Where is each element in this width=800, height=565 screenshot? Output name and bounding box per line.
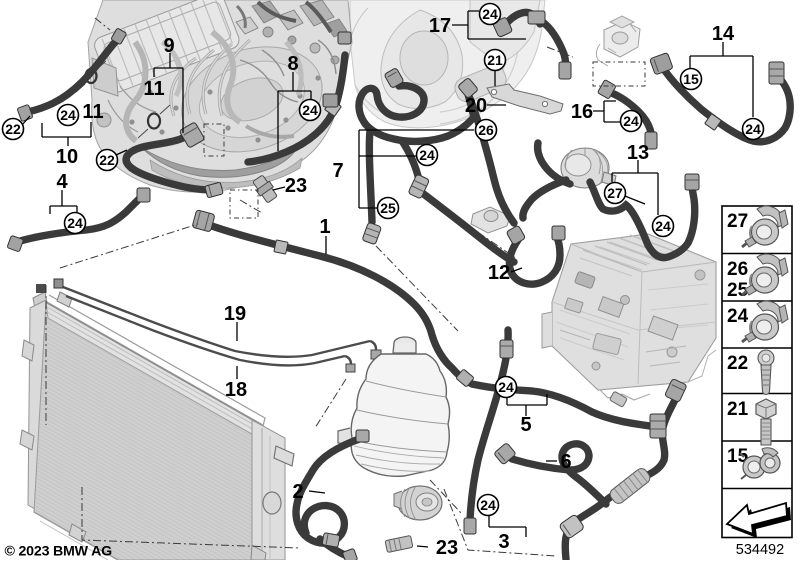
svg-text:26: 26 (478, 122, 494, 138)
svg-text:11: 11 (82, 101, 103, 123)
svg-text:16: 16 (571, 101, 593, 123)
svg-text:9: 9 (163, 35, 174, 57)
svg-text:19: 19 (224, 303, 246, 325)
svg-text:24: 24 (419, 147, 435, 163)
svg-text:5: 5 (520, 414, 531, 436)
svg-text:22: 22 (5, 121, 21, 137)
svg-text:14: 14 (712, 23, 735, 45)
svg-text:24: 24 (480, 497, 496, 513)
svg-text:17: 17 (429, 15, 451, 37)
svg-text:27: 27 (607, 185, 623, 201)
svg-text:21: 21 (727, 399, 749, 420)
svg-text:22: 22 (99, 152, 115, 168)
svg-text:24: 24 (727, 306, 749, 327)
svg-text:3: 3 (498, 531, 509, 553)
svg-text:15: 15 (683, 71, 699, 87)
svg-text:10: 10 (56, 146, 78, 168)
svg-text:534492: 534492 (736, 542, 784, 558)
svg-text:21: 21 (487, 52, 503, 68)
svg-text:2: 2 (292, 481, 303, 503)
svg-text:24: 24 (623, 113, 639, 129)
svg-text:25: 25 (380, 200, 396, 216)
svg-text:24: 24 (745, 121, 761, 137)
svg-text:24: 24 (655, 218, 671, 234)
svg-text:1: 1 (319, 216, 330, 238)
svg-text:24: 24 (302, 102, 318, 118)
svg-text:4: 4 (56, 171, 68, 193)
svg-text:26: 26 (727, 259, 748, 280)
svg-text:11: 11 (143, 78, 164, 100)
svg-text:24: 24 (482, 6, 498, 22)
svg-text:7: 7 (332, 160, 343, 182)
svg-text:© 2023 BMW AG: © 2023 BMW AG (5, 544, 113, 560)
svg-text:23: 23 (436, 537, 458, 559)
svg-text:23: 23 (285, 175, 307, 197)
svg-text:27: 27 (727, 211, 748, 232)
svg-text:8: 8 (287, 53, 298, 75)
svg-text:18: 18 (225, 379, 247, 401)
svg-text:24: 24 (67, 215, 83, 231)
svg-text:24: 24 (498, 379, 514, 395)
svg-text:13: 13 (627, 142, 649, 164)
svg-text:22: 22 (727, 353, 748, 374)
svg-text:6: 6 (560, 451, 571, 473)
svg-text:12: 12 (488, 262, 510, 284)
svg-text:24: 24 (60, 107, 76, 123)
svg-text:20: 20 (465, 95, 487, 117)
